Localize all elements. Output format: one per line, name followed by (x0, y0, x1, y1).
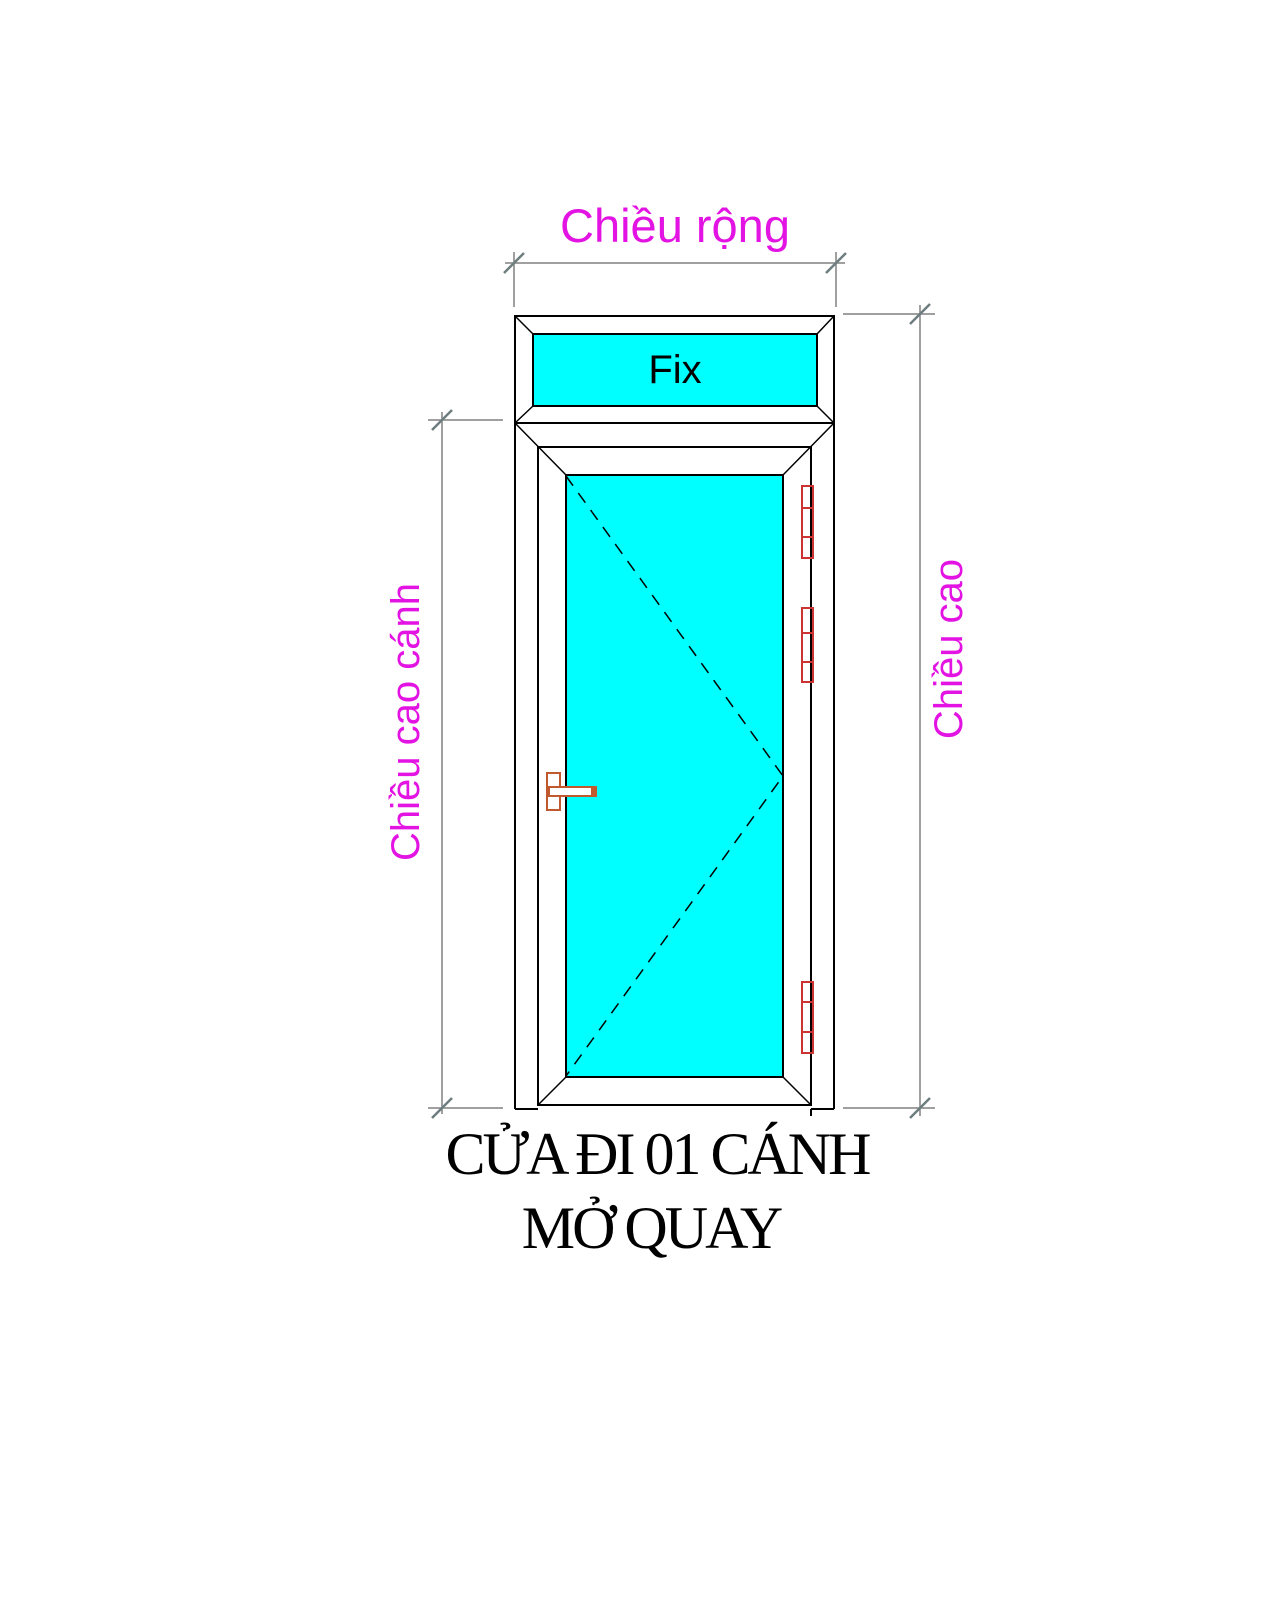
handle-lever-tip (591, 788, 596, 795)
dimension-label-leaf-height: Chiều cao cánh (386, 583, 426, 861)
drawing-title-line1: CỬA ĐI 01 CÁNH (446, 1122, 869, 1186)
dimension-label-height: Chiều cao (929, 559, 969, 739)
drawing-title-line2: MỞ QUAY (522, 1196, 781, 1260)
door-glass (566, 475, 783, 1077)
dimension-label-width: Chiều rộng (475, 196, 875, 256)
transom-fix-label: Fix (533, 334, 817, 406)
handle-lever (549, 787, 596, 796)
drawing-canvas: Chiều rộng Chiều cao cánh Chiều cao Fix … (0, 0, 1280, 1600)
